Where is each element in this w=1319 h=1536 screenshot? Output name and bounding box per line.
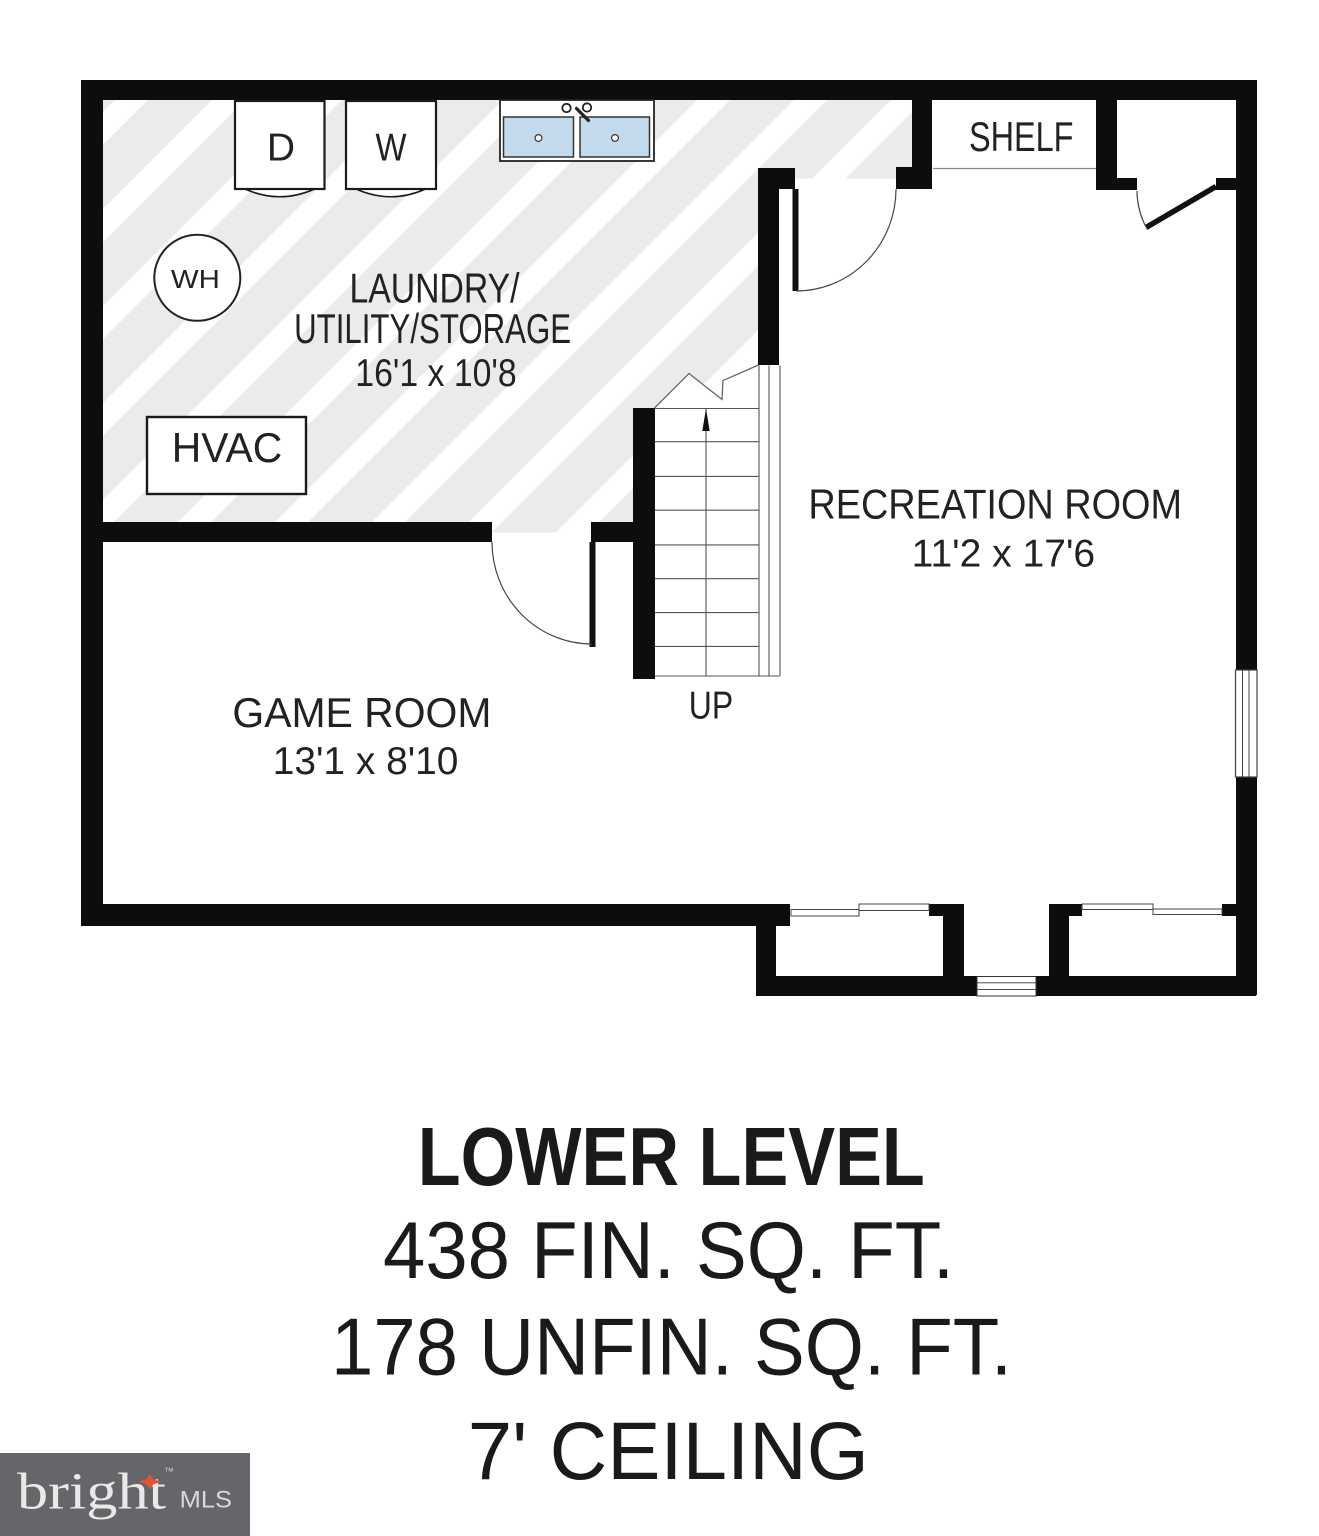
svg-text:LOWER LEVEL: LOWER LEVEL bbox=[418, 1110, 925, 1203]
svg-text:UTILITY/STORAGE: UTILITY/STORAGE bbox=[294, 305, 571, 352]
svg-text:MLS: MLS bbox=[180, 1487, 232, 1514]
svg-text:UP: UP bbox=[689, 685, 733, 728]
svg-text:RECREATION ROOM: RECREATION ROOM bbox=[808, 480, 1182, 527]
svg-text:438 FIN. SQ. FT.: 438 FIN. SQ. FT. bbox=[383, 1206, 954, 1296]
svg-text:D: D bbox=[267, 126, 295, 169]
svg-text:W: W bbox=[376, 126, 407, 169]
svg-text:16'1 x 10'8: 16'1 x 10'8 bbox=[355, 352, 516, 395]
svg-text:™: ™ bbox=[164, 1467, 174, 1478]
svg-text:11'2 x 17'6: 11'2 x 17'6 bbox=[912, 533, 1096, 576]
svg-text:HVAC: HVAC bbox=[172, 424, 283, 471]
svg-text:7' CEILING: 7' CEILING bbox=[468, 1406, 869, 1497]
svg-text:SHELF: SHELF bbox=[969, 113, 1074, 160]
svg-text:GAME ROOM: GAME ROOM bbox=[232, 689, 491, 736]
svg-text:13'1 x 8'10: 13'1 x 8'10 bbox=[273, 740, 459, 783]
svg-text:bright: bright bbox=[17, 1464, 167, 1521]
svg-text:178 UNFIN. SQ. FT.: 178 UNFIN. SQ. FT. bbox=[331, 1303, 1012, 1393]
svg-text:WH: WH bbox=[171, 264, 220, 294]
